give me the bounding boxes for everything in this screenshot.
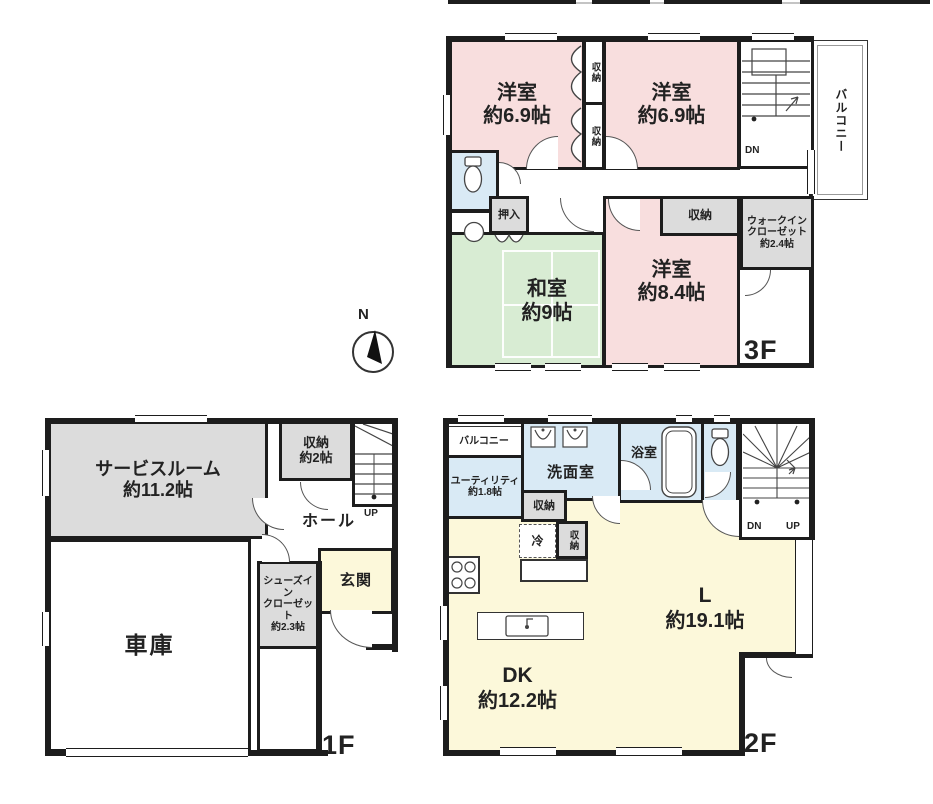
bathtub-icon xyxy=(661,426,697,498)
wall xyxy=(392,418,398,652)
f3-bedroom-c-area: 約8.4帖 xyxy=(638,282,706,305)
window xyxy=(714,415,730,423)
floor-plan-canvas: N バルコニー 洋室 約6.9帖 収納 収納 洋室 約6.9帖 DN xyxy=(0,0,933,804)
f2-stairs-dn-label: DN xyxy=(747,521,761,533)
f1-closet-name: 収納 xyxy=(303,436,329,451)
sink-icon xyxy=(530,426,556,448)
f2-closet-a-label: 収納 xyxy=(533,500,555,513)
window xyxy=(545,363,581,371)
f1-garage-label: 車庫 xyxy=(125,632,175,658)
f1-sic-line2: クローゼット xyxy=(260,599,316,622)
window xyxy=(795,540,813,654)
f2-closet-a: 収納 xyxy=(521,490,567,522)
bifold-door-icon xyxy=(560,106,582,164)
wall xyxy=(809,418,815,540)
window xyxy=(612,363,648,371)
door-arc xyxy=(766,658,792,678)
window xyxy=(505,33,557,41)
f2-stairs-icon xyxy=(743,424,811,516)
f1-garage: 車庫 xyxy=(48,539,251,752)
f1-service-room-area: 約11.2帖 xyxy=(123,480,193,501)
f3-washitsu-area: 約9帖 xyxy=(521,301,572,325)
window xyxy=(648,33,700,41)
f1-service-room: サービスルーム 約11.2帖 xyxy=(48,421,268,539)
window xyxy=(807,150,815,194)
f2-floor-label: 2F xyxy=(744,727,778,759)
basin-icon xyxy=(462,220,486,244)
f1-hall-label: ホール xyxy=(302,512,356,531)
f3-oshiire: 押入 xyxy=(489,196,529,234)
f3-bedroom-c-name: 洋室 xyxy=(652,259,692,282)
f1-porch xyxy=(257,647,319,752)
kitchen-sink-icon xyxy=(505,615,549,637)
f3-balcony: バルコニー xyxy=(812,40,868,200)
crop-artifact-wall xyxy=(592,0,650,4)
f3-bedroom-b-area: 約6.9帖 xyxy=(638,105,706,128)
window xyxy=(676,415,692,423)
f2-balcony-label: バルコニー xyxy=(459,436,509,448)
f3-closet-c-label: 収納 xyxy=(688,209,712,223)
front-door-arc xyxy=(330,610,372,648)
wall xyxy=(443,750,745,756)
f3-closet-c: 収納 xyxy=(660,196,740,236)
window xyxy=(548,415,592,423)
window xyxy=(42,450,50,496)
crop-artifact-wall xyxy=(800,0,930,4)
window xyxy=(500,747,556,756)
window xyxy=(440,686,448,720)
f2-fridge-label: 冷 xyxy=(531,534,543,548)
window xyxy=(495,363,531,371)
f2-utility: ユーティリティ 約1.8帖 xyxy=(446,455,524,519)
f3-stairs-dn-label: DN xyxy=(745,145,759,157)
f3-walkin-closet: ウォークイン クローゼット 約2.4帖 xyxy=(740,196,814,270)
f1-genkan: 玄関 xyxy=(318,548,394,614)
f2-washroom-label: 洗面室 xyxy=(547,464,595,481)
f1-genkan-label: 玄関 xyxy=(340,572,372,589)
f3-bedroom-a-name: 洋室 xyxy=(497,82,537,105)
f1-shoes-in-closet: シューズイン クローゼット 約2.3帖 xyxy=(257,561,319,649)
f2-utility-name: ユーティリティ xyxy=(451,476,520,488)
f3-closet-b: 収納 xyxy=(583,102,605,170)
crop-artifact-wall xyxy=(664,0,782,4)
f2-dk-name: DK xyxy=(502,663,532,688)
f3-bedroom-a-area: 約6.9帖 xyxy=(483,105,551,128)
bifold-door-icon xyxy=(560,44,582,102)
f3-wic-line2: クローゼット xyxy=(747,227,807,239)
stove-icon xyxy=(449,558,478,592)
f3-oshiire-label: 押入 xyxy=(498,209,520,222)
wall xyxy=(739,652,745,756)
sink-icon xyxy=(562,426,588,448)
f1-stairs-up-label: UP xyxy=(364,508,378,520)
f1-closet-area: 約2帖 xyxy=(299,451,332,466)
f1-floor-label: 1F xyxy=(322,729,356,761)
compass-north-label: N xyxy=(358,306,370,324)
toilet-icon xyxy=(709,428,731,468)
f2-stairs-up-label: UP xyxy=(786,521,800,533)
f3-floor-label: 3F xyxy=(744,334,778,366)
wall xyxy=(45,418,398,424)
f1-sic-line3: 約2.3帖 xyxy=(271,622,305,634)
f3-bedroom-b-name: 洋室 xyxy=(652,82,692,105)
toilet-icon xyxy=(462,156,484,194)
window xyxy=(440,606,448,640)
window xyxy=(664,363,700,371)
f2-dk-area: 約12.2帖 xyxy=(478,689,557,713)
f3-closet-a: 収納 xyxy=(583,39,605,105)
garage-door xyxy=(66,748,248,757)
f3-wic-line3: 約2.4帖 xyxy=(760,239,794,251)
f2-closet-b-label: 収納 xyxy=(567,530,578,551)
f2-closet-b: 収納 xyxy=(556,521,588,559)
f2-utility-area: 約1.8帖 xyxy=(468,487,502,499)
wall xyxy=(316,561,322,756)
f2-fridge-space: 冷 xyxy=(519,524,556,558)
compass-icon xyxy=(348,326,398,376)
f3-washitsu-name: 和室 xyxy=(527,277,567,301)
door-arc xyxy=(262,534,290,562)
f3-closet-b-label: 収納 xyxy=(589,126,600,147)
window xyxy=(42,612,50,646)
f3-stairs-icon xyxy=(742,45,810,141)
f1-stairs-icon xyxy=(355,424,393,502)
window xyxy=(752,33,794,41)
crop-artifact-wall xyxy=(448,0,576,4)
f2-living-name: L xyxy=(699,583,712,608)
f1-service-room-name: サービスルーム xyxy=(95,459,220,480)
window xyxy=(135,415,207,423)
f2-living-area: 約19.1帖 xyxy=(666,609,745,633)
bifold-door-icon xyxy=(494,234,524,250)
window xyxy=(443,95,451,135)
kitchen-counter xyxy=(520,559,588,582)
f1-closet: 収納 約2帖 xyxy=(279,421,353,481)
f3-wic-line1: ウォークイン xyxy=(747,216,807,228)
f3-washitsu: 和室 約9帖 xyxy=(449,232,605,368)
f1-sic-line1: シューズイン xyxy=(260,576,316,599)
window xyxy=(616,747,682,756)
window xyxy=(458,415,504,423)
door-arc xyxy=(300,482,328,510)
f2-bathroom-label: 浴室 xyxy=(631,446,657,461)
f3-closet-a-label: 収納 xyxy=(589,62,600,83)
f2-balcony: バルコニー xyxy=(444,426,524,457)
